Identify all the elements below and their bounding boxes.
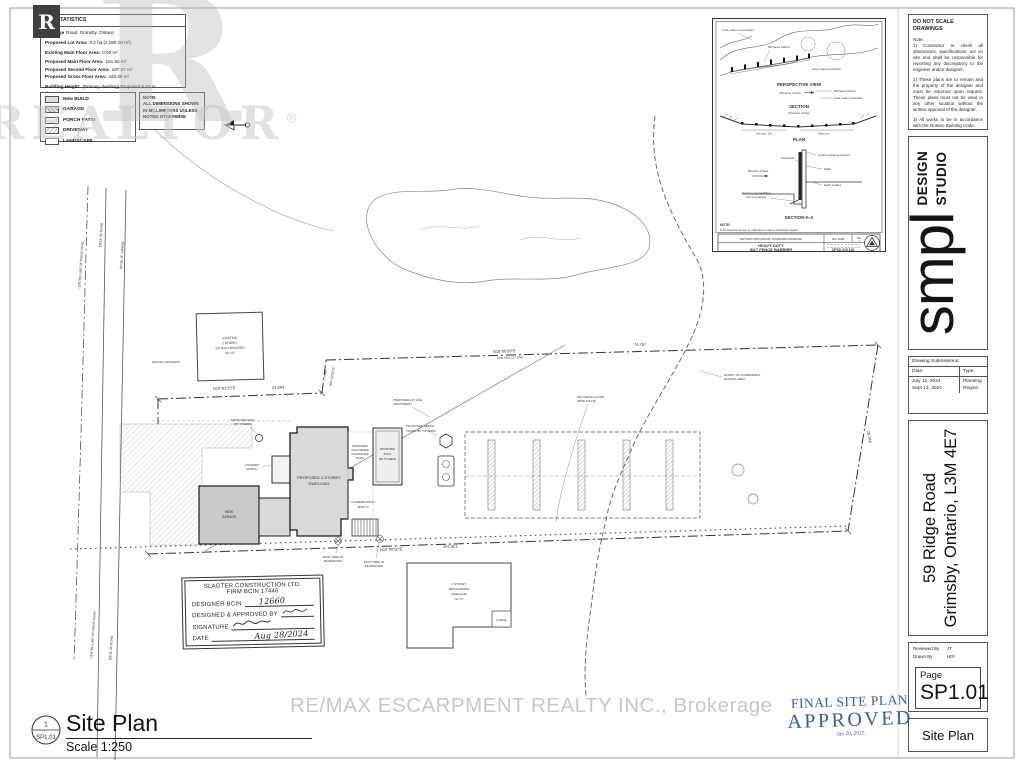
sheet-title: Site Plan: [922, 728, 974, 743]
neighbour-dwelling: [407, 563, 511, 648]
detail-footer-date: Nov 2006: [832, 237, 845, 241]
sheet-reference-bubble: 1 SP1.01: [28, 712, 64, 748]
signature-scribble: [281, 606, 309, 617]
steps: [352, 519, 378, 536]
legend-label: DRIVEWAY: [63, 128, 88, 133]
plan-label-n574: No. 57: [455, 597, 464, 601]
legend-swatch-garage: [45, 106, 59, 113]
plan-label-pool3: (BY OTHERS): [379, 457, 396, 461]
date-label: DATE: [192, 636, 208, 642]
drawing-scale: Scale 1:250: [66, 740, 316, 754]
plan-label-treeA1: EXIST. TREE TO: [323, 555, 343, 559]
plan-label-exist1: EXISTING: [222, 336, 237, 340]
adj-leader: [412, 407, 430, 417]
plan-label-road1: CENTRE LINE OF RIDGE ROAD: [77, 240, 84, 288]
legend-label: PORCH PATIO: [63, 118, 96, 123]
title-underline: [66, 738, 312, 739]
stat-label: Building Height:: [45, 84, 80, 90]
aa-post: [802, 150, 806, 208]
plan-label-exist3: STUCCO BUILDING: [215, 346, 245, 351]
page-number-box: Page SP1.01: [915, 667, 981, 709]
detail-label-flow2: Direction of flow: [788, 111, 810, 115]
drawing-title-block: Site Plan Scale 1:250: [66, 710, 316, 754]
plan-label-n571: 2 STOREY: [452, 582, 467, 586]
drawn-by-value: HD²: [947, 654, 955, 659]
plan-label-road1b: CENTRE LINE OF RIDGE ROAD: [89, 610, 96, 658]
address-line2: Grimsby, Ontario, L3M 4E7: [941, 420, 962, 636]
designer-logo-box: smpl DESIGN STUDIO: [908, 136, 988, 350]
smpl-logo: smpl DESIGN STUDIO: [911, 139, 985, 347]
plan-label-dim-top-len: 74.767: [634, 342, 647, 347]
stat-label: Proposed Second Floor Area:: [45, 67, 110, 73]
stat-value: (Primary dwelling) Proposed 9.03 m: [82, 84, 155, 90]
plan-label-nat2: NATURAL AREA: [724, 377, 745, 381]
stat-value: 187.47 m²: [112, 67, 133, 73]
realtor-logo-r: R: [38, 10, 55, 34]
designer-signature-box: SLAGTER CONSTRUCTION LTD. FIRM BCIN 1744…: [181, 575, 324, 650]
detail-title2: SILT FENCE BARRIER: [750, 247, 792, 252]
plan-label-jog-bearing: N61°10'55"W: [328, 367, 335, 386]
project-address-box: 59 Ridge Road Grimsby, Ontario, L3M 4E7: [908, 420, 988, 636]
detail-opsd: OPSD 219.130: [832, 248, 855, 252]
detail-footer-left: ONTARIO PROVINCIAL STANDARD DRAWING: [740, 237, 803, 241]
plan-label-patio4: PATIO: [356, 456, 365, 460]
detail-label-dimtyp: 3m max, Typ: [756, 132, 772, 136]
project-address: 59 Ridge Road Grimsby, Ontario, L3M 4E7: [920, 420, 976, 636]
nat-leader: [700, 371, 722, 377]
detail-label-flow: Direction of flow: [779, 91, 801, 95]
plan-label-adj2: ADJUSTMENT: [393, 402, 412, 406]
site-plan-sheet: CENTRE LINE OF RIDGE ROAD EDGE OF ROAD E…: [0, 0, 1024, 768]
plan-label-dim-top-bearing: N19°00'50"E: [493, 348, 516, 354]
plan-label-treeB1: EXIST. TREE TO: [364, 560, 384, 564]
dimension-note-box: NOTE: ALL DIMENSIONS SHOWN IN MILLIMETER…: [139, 92, 205, 130]
plan-label-jog-len: 5.486: [322, 369, 327, 378]
col-type: Type:: [960, 367, 987, 376]
plan-label-dim-a-len: 24.994: [272, 385, 285, 390]
plan-label-garage2: GARAGE: [222, 515, 237, 519]
detail-label-barrier2: Silt fence barrier: [834, 89, 856, 93]
address-line1: 59 Ridge Road: [920, 420, 941, 636]
plan-label-well2: (BY OTHERS): [234, 422, 252, 426]
aa-geotextile: [799, 152, 802, 200]
stat-value: 161.82 m²: [106, 59, 127, 65]
connector-link: [259, 498, 290, 536]
plan-label-road2: EDGE OF ROAD: [98, 222, 104, 247]
stat-value: 0.00 m²: [102, 50, 118, 56]
legend-swatch-landscape: [45, 138, 59, 145]
detail-label-flow3: Direction of flow: [748, 169, 769, 173]
legend-box: New BUILD GARAGE PORCH PATIO DRIVEWAY LA…: [40, 92, 136, 142]
detail-label-trench2: and compacted: [746, 195, 766, 199]
stats-address: Road, Grimsby, Ontario: [66, 30, 114, 36]
detail-label-support: Control measure support: [818, 153, 850, 157]
submissions-title: Drawing Submissions:: [909, 357, 987, 367]
detail-label-mainrun: Main run: [819, 132, 830, 136]
plan-label-dim-bot-bearing: N19°00'50"E: [380, 546, 403, 552]
detail-title-section: SECTION: [789, 104, 809, 109]
submission-type: Region: [960, 384, 987, 393]
plan-label-septic1: PROPOSED SEPTIC: [406, 424, 436, 428]
plan-label-dwel2: DWELLING: [309, 481, 330, 486]
stat-label: Proposed Lot Area:: [45, 40, 87, 46]
drawn-by-label: Drawn By: [913, 654, 947, 659]
tree: [748, 494, 758, 504]
septic-bed-runs: [488, 440, 673, 510]
reviewed-by-value: JT: [947, 646, 952, 651]
legend-label: GARAGE: [63, 107, 84, 112]
drawing-title: Site Plan: [66, 710, 316, 737]
ops-logo-icon: [865, 236, 880, 251]
legend-label: New BUILD: [63, 97, 89, 102]
plan-label-pool2: POOL: [384, 452, 392, 456]
plan-label-treeA2: BE REMOVED: [324, 559, 342, 563]
legend-swatch-porch: [45, 117, 59, 124]
plan-label-exist4: No. 61: [225, 351, 235, 355]
plan-label-road3: EDGE OF GRAVEL: [119, 241, 125, 269]
detail-title-sectionaa: SECTION A-A: [784, 215, 814, 220]
plan-label-treeB2: BE REMOVED: [365, 564, 383, 568]
lot-statistics-title: LOT STATISTICS: [41, 15, 185, 27]
note-line: NOTED OTHERWISE: [143, 114, 201, 120]
submission-date: Sept 13, 2024: [909, 384, 960, 393]
stamp-line2: APPROVED: [786, 707, 915, 734]
detail-label-geotextile: Geotextile: [781, 156, 794, 160]
septic-tank-hex: [440, 434, 452, 448]
plan-label-road2b: EDGE OF ROAD: [108, 635, 114, 660]
plan-label-dwel1: PROPOSED 2-STOREY: [297, 475, 341, 480]
plan-label-gravel: GRAVEL DRIVEWAY: [152, 360, 180, 364]
detail-label-stake: Stake: [824, 167, 832, 171]
signature-scribble: [231, 617, 271, 629]
designer-bcin-label: DESIGNER BCIN: [192, 601, 242, 608]
plan-label-dim-a-bearing: N19°01'25"E: [213, 385, 236, 391]
stream-line: [585, 116, 704, 696]
north-arrow-icon: [222, 116, 252, 134]
page-number: SP1.01: [920, 681, 976, 705]
legend-swatch-driveway: [45, 127, 59, 134]
note-line: ALL DIMENSIONS SHOWN: [143, 101, 201, 107]
legend-label: LANDSCAPE: [63, 139, 93, 144]
stat-value: 349.29 m²: [108, 74, 129, 80]
natural-area-squiggle: [420, 226, 580, 240]
detail-note: NOTE:: [720, 223, 731, 227]
plan-label-silt2: OPSD 219.130: [577, 399, 596, 403]
approval-stamp: FINAL SITE PLAN APPROVED Jan 20, 2025: [785, 692, 914, 739]
legend-swatch-newbuild: [45, 96, 59, 103]
tree-leader: [336, 545, 338, 553]
plan-label-garage1: NEW: [225, 510, 234, 514]
col-date: Date:: [909, 367, 960, 376]
covered-porch: [272, 456, 291, 483]
pool: [373, 428, 402, 485]
ref-sheet: SP1.01: [36, 735, 56, 741]
general-note-2: 2) These plans are to remain and the pro…: [913, 77, 983, 113]
plan-label-porch2: PORCH: [247, 467, 258, 471]
do-not-scale-title: DO NOT SCALE DRAWINGS: [913, 19, 983, 34]
plan-label-dim-bot-len: 102.451: [443, 544, 458, 549]
stat-value: 0.2 ha (2,086.00 m²): [89, 40, 131, 46]
plan-label-pool1: PROPOSED: [380, 447, 395, 451]
do-not-scale-box: DO NOT SCALE DRAWINGS Note: 1) Contracto…: [908, 14, 988, 130]
well: [256, 435, 263, 442]
detail-label-barrier: Silt fence barrier: [768, 45, 790, 49]
sheet-title-box: Site Plan: [908, 718, 988, 752]
silt-fence-detail: Area under construction Silt fence barri…: [712, 18, 886, 252]
general-note-1: 1) Contractor to check all dimensions, s…: [913, 43, 983, 73]
detail-label-construction: Area under construction: [722, 28, 754, 32]
plan-label-covpatio2: 38.06 m²: [357, 505, 368, 509]
stat-label: Proposed Gross Floor Area:: [45, 74, 106, 80]
tree: [732, 464, 744, 476]
signature-label: SIGNATURE: [192, 624, 228, 631]
plan-label-n573: DWELLING: [451, 592, 467, 596]
detail-note-a: A All dimensions are in millimetres unle…: [720, 228, 799, 232]
review-box: Reviewed ByJT Drawn ByHD² Page SP1.01: [908, 642, 988, 712]
detail-title-plan: PLAN: [793, 137, 805, 142]
plan-label-covpatio1: COVERED PATIO: [351, 500, 375, 504]
designer-bcin-value: 12660: [258, 595, 285, 605]
natural-area-outline: [367, 189, 650, 283]
detail-title-perspective: PERSPECTIVE VIEW: [777, 82, 822, 87]
logo-sub2: STUDIO: [935, 151, 949, 206]
plan-label-dim-east: 28.346: [866, 430, 873, 444]
stat-label: Proposed Main Floor Area:: [45, 59, 104, 65]
date-value: Aug 28/2024: [254, 629, 308, 641]
detail-label-protection2: Area under protection: [834, 96, 863, 100]
realtor-logo-block: R: [33, 5, 60, 38]
stat-label: Existing Main Floor Area:: [45, 50, 100, 56]
detail-label-protection: Area under protection: [812, 67, 841, 71]
detail-label-earth: Earth surface: [824, 183, 842, 187]
page-label: Page: [920, 670, 976, 681]
ref-number: 1: [44, 720, 48, 729]
plan-label-existing-lot-line: EXISTING LOT LINE: [497, 355, 523, 360]
drawing-submissions-box: Drawing Submissions: Date:Type: July 12,…: [908, 356, 988, 414]
reviewed-by-label: Reviewed By: [913, 646, 947, 651]
general-note-3: 3) All works to be in accordance with th…: [913, 117, 983, 129]
plan-label-garage57: GARAGE: [496, 619, 507, 622]
tree-leader: [376, 543, 379, 558]
porch-leader: [262, 465, 271, 467]
logo-wordmark: smpl: [911, 213, 954, 336]
logo-sub1: DESIGN: [916, 151, 930, 206]
lot-statistics-box: LOT STATISTICS 59 RidgeRoad, Grimsby, On…: [40, 14, 186, 88]
plan-label-n572: BRICK/SIDING: [449, 587, 470, 591]
plan-label-exist2: 2 STOREY: [222, 341, 239, 345]
